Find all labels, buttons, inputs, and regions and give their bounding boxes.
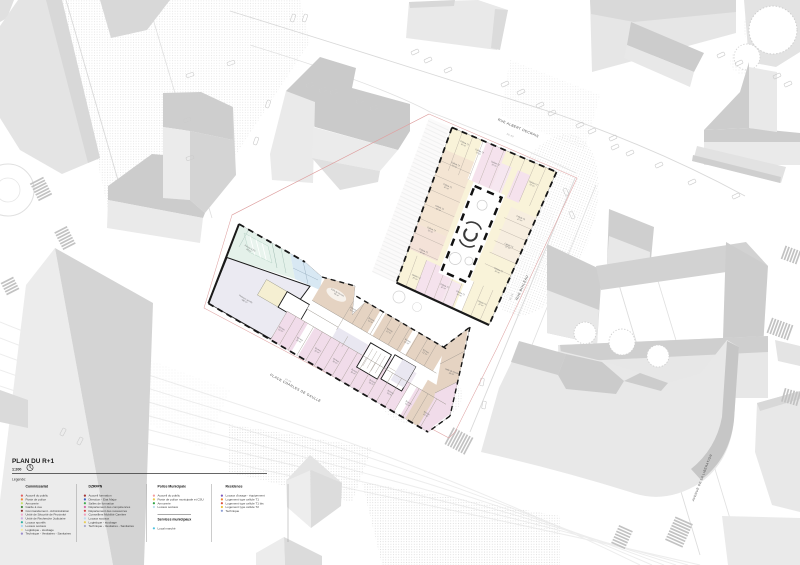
svg-text:Local marché: Local marché [158,526,176,530]
svg-text:Légende:: Légende: [12,478,26,482]
svg-text:Police Municipale: Police Municipale [158,485,187,489]
svg-text:Technique - Vestiaires - Sanit: Technique - Vestiaires - Sanitaires [26,532,72,536]
svg-text:Technique: Technique [226,509,240,513]
svg-text:Residence: Residence [226,485,243,489]
svg-text:Technique - Vestiaires - Sanit: Technique - Vestiaires - Sanitaires [89,524,135,528]
svg-text:Locaux sociaux: Locaux sociaux [158,505,179,509]
svg-text:DZRFPN: DZRFPN [89,485,103,489]
svg-text:PLAN DU R+1: PLAN DU R+1 [12,458,55,465]
svg-text:Commissariat: Commissariat [26,485,49,489]
svg-text:1:200: 1:200 [12,468,21,472]
svg-text:Services municipaux: Services municipaux [158,517,192,521]
